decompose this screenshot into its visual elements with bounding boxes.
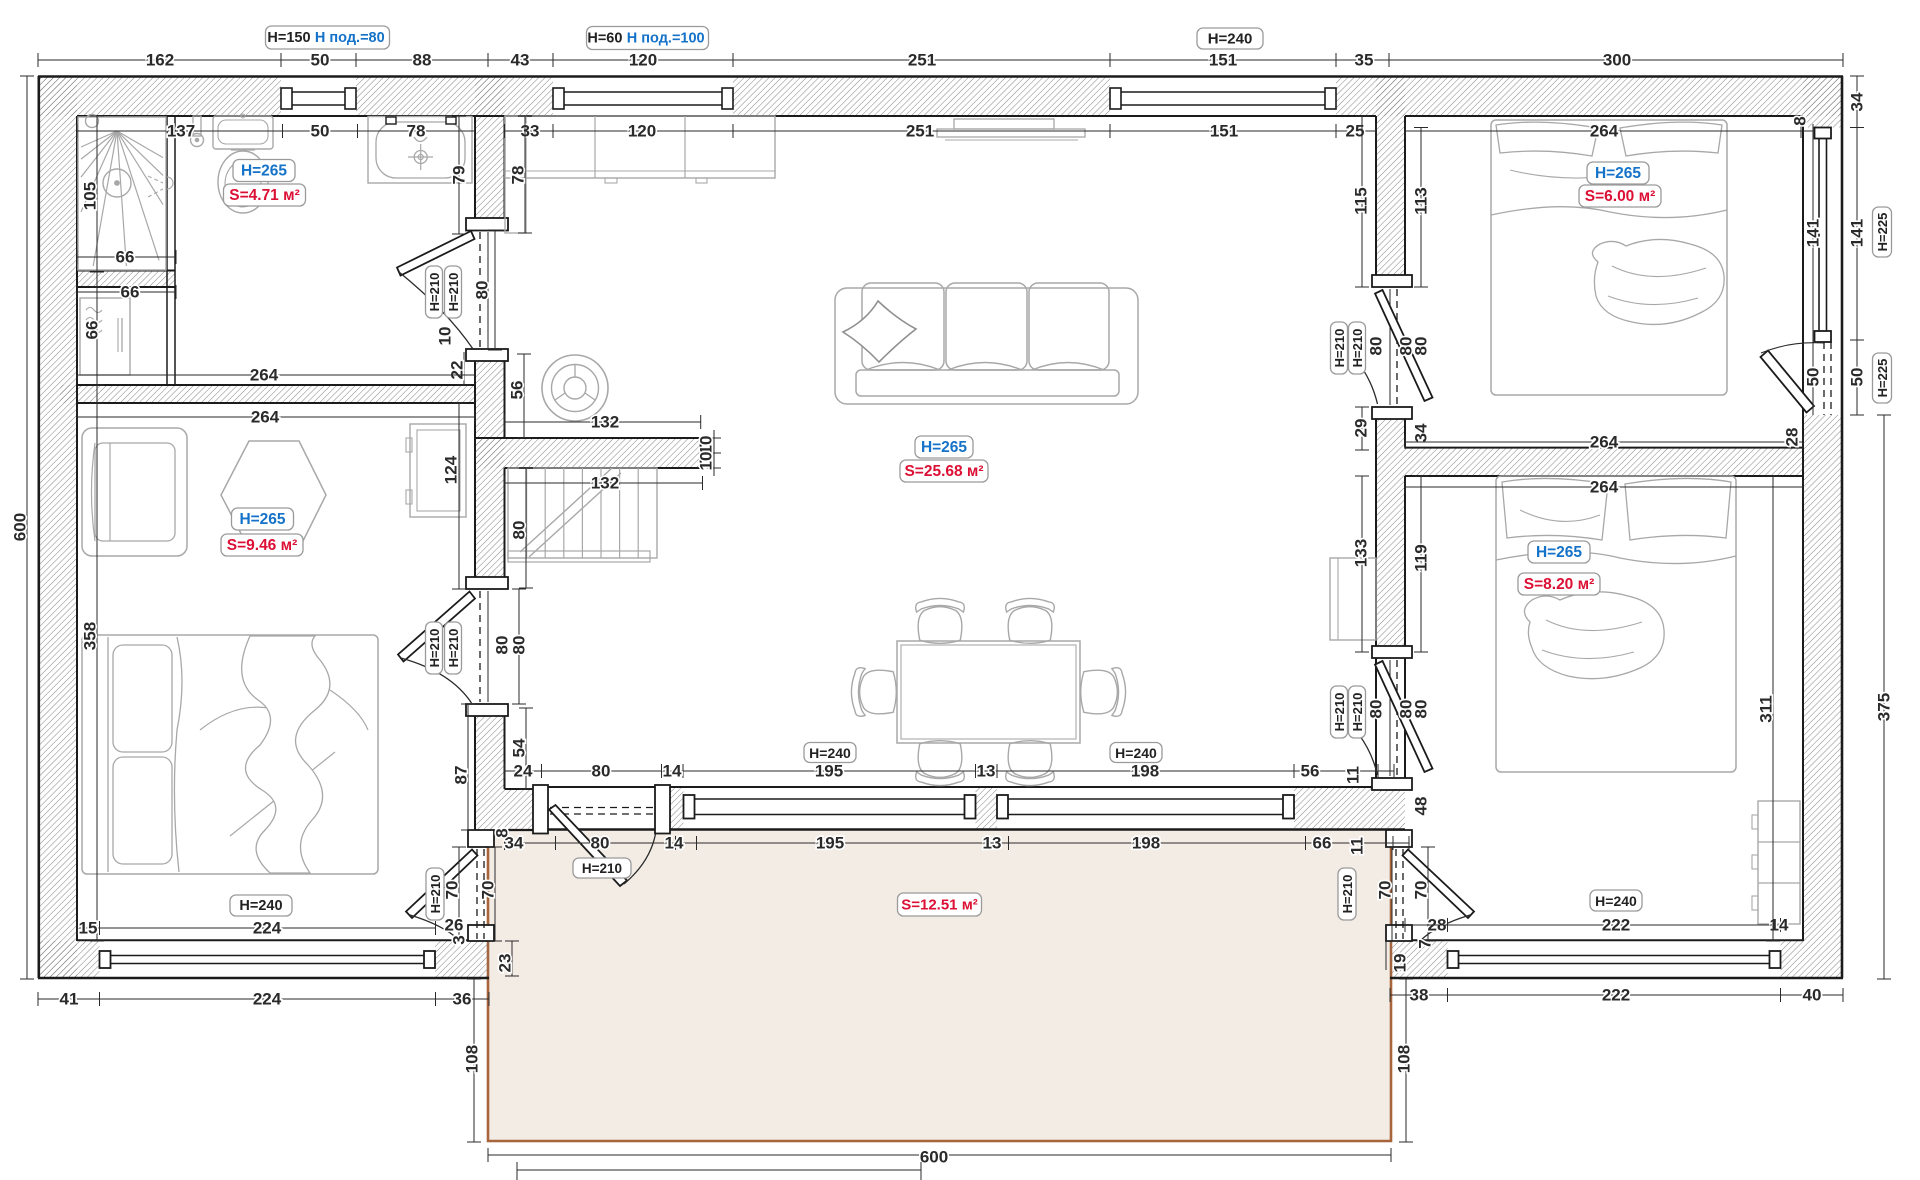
svg-text:78: 78 bbox=[407, 122, 426, 141]
svg-text:Н под.=80: Н под.=80 bbox=[315, 30, 385, 46]
svg-text:H=210: H=210 bbox=[1340, 875, 1355, 914]
svg-text:80: 80 bbox=[591, 834, 610, 853]
svg-text:80: 80 bbox=[510, 636, 529, 655]
svg-text:3: 3 bbox=[450, 935, 469, 944]
svg-text:137: 137 bbox=[167, 122, 195, 141]
svg-text:264: 264 bbox=[1590, 478, 1619, 497]
svg-text:115: 115 bbox=[1352, 187, 1371, 214]
svg-text:H=210: H=210 bbox=[1350, 693, 1365, 732]
svg-text:35: 35 bbox=[1355, 51, 1374, 70]
svg-text:251: 251 bbox=[906, 122, 934, 141]
svg-text:80: 80 bbox=[1367, 337, 1386, 356]
svg-text:43: 43 bbox=[511, 51, 530, 70]
svg-text:80: 80 bbox=[1412, 700, 1431, 719]
svg-text:22: 22 bbox=[448, 361, 467, 380]
svg-text:H=240: H=240 bbox=[1208, 31, 1253, 48]
svg-text:79: 79 bbox=[450, 166, 469, 185]
svg-text:264: 264 bbox=[1590, 122, 1619, 141]
svg-text:50: 50 bbox=[311, 122, 330, 141]
svg-text:375: 375 bbox=[1875, 693, 1894, 721]
svg-text:198: 198 bbox=[1132, 834, 1160, 853]
svg-text:H=210: H=210 bbox=[428, 875, 443, 914]
svg-text:198: 198 bbox=[1131, 762, 1159, 781]
svg-text:600: 600 bbox=[11, 513, 30, 541]
svg-text:162: 162 bbox=[146, 51, 174, 70]
svg-text:H=210: H=210 bbox=[582, 861, 622, 876]
svg-text:14: 14 bbox=[1770, 916, 1789, 935]
svg-text:141: 141 bbox=[1804, 219, 1823, 247]
svg-text:133: 133 bbox=[1352, 539, 1371, 567]
svg-text:251: 251 bbox=[908, 51, 936, 70]
svg-text:36: 36 bbox=[453, 990, 472, 1009]
svg-text:87: 87 bbox=[452, 766, 471, 785]
svg-text:H=210: H=210 bbox=[427, 273, 442, 312]
svg-text:H=265: H=265 bbox=[239, 511, 285, 528]
svg-text:50: 50 bbox=[311, 51, 330, 70]
svg-text:H=265: H=265 bbox=[1595, 165, 1641, 182]
svg-text:224: 224 bbox=[253, 990, 282, 1009]
svg-text:10: 10 bbox=[436, 327, 455, 346]
svg-text:34: 34 bbox=[1848, 92, 1867, 111]
svg-text:70: 70 bbox=[1412, 881, 1431, 900]
svg-text:H=225: H=225 bbox=[1875, 359, 1890, 398]
svg-text:132: 132 bbox=[591, 413, 619, 432]
svg-text:40: 40 bbox=[1803, 986, 1822, 1005]
svg-text:50: 50 bbox=[1804, 368, 1823, 387]
svg-text:105: 105 bbox=[81, 182, 100, 210]
svg-text:151: 151 bbox=[1209, 51, 1237, 70]
svg-text:S=4.71 м²: S=4.71 м² bbox=[229, 187, 300, 204]
svg-text:264: 264 bbox=[250, 366, 279, 385]
svg-text:H=225: H=225 bbox=[1875, 213, 1890, 252]
svg-text:70: 70 bbox=[479, 881, 498, 900]
svg-text:311: 311 bbox=[1757, 695, 1776, 722]
svg-text:195: 195 bbox=[815, 762, 843, 781]
svg-text:19: 19 bbox=[1391, 954, 1410, 973]
svg-text:80: 80 bbox=[473, 281, 492, 300]
svg-text:S=12.51 м²: S=12.51 м² bbox=[901, 897, 978, 914]
svg-text:33: 33 bbox=[521, 122, 540, 141]
svg-text:H=210: H=210 bbox=[446, 629, 461, 668]
svg-text:11: 11 bbox=[1344, 766, 1363, 784]
svg-text:H=210: H=210 bbox=[446, 273, 461, 312]
svg-text:H=210: H=210 bbox=[1350, 329, 1365, 368]
svg-text:56: 56 bbox=[508, 381, 527, 400]
svg-text:120: 120 bbox=[628, 122, 656, 141]
svg-text:Н под.=100: Н под.=100 bbox=[627, 31, 705, 47]
svg-text:222: 222 bbox=[1602, 916, 1630, 935]
svg-text:26: 26 bbox=[445, 916, 464, 935]
svg-text:358: 358 bbox=[81, 622, 100, 650]
svg-text:70: 70 bbox=[443, 881, 462, 900]
svg-text:80: 80 bbox=[1367, 700, 1386, 719]
svg-text:8: 8 bbox=[1791, 116, 1810, 125]
svg-text:H=240: H=240 bbox=[1115, 745, 1157, 761]
svg-text:66: 66 bbox=[83, 321, 102, 340]
svg-text:124: 124 bbox=[442, 455, 461, 484]
svg-text:38: 38 bbox=[1410, 986, 1429, 1005]
svg-text:H=150: H=150 bbox=[267, 30, 310, 46]
svg-text:56: 56 bbox=[1301, 762, 1320, 781]
svg-text:S=25.68 м²: S=25.68 м² bbox=[904, 463, 983, 480]
svg-text:10: 10 bbox=[697, 452, 716, 471]
svg-text:H=240: H=240 bbox=[239, 898, 282, 914]
svg-text:S=6.00 м²: S=6.00 м² bbox=[1585, 188, 1656, 205]
svg-text:54: 54 bbox=[510, 738, 529, 757]
svg-text:H=210: H=210 bbox=[427, 629, 442, 668]
svg-text:23: 23 bbox=[496, 954, 515, 973]
svg-text:264: 264 bbox=[1590, 433, 1619, 452]
svg-text:H=265: H=265 bbox=[921, 439, 967, 456]
svg-text:H=210: H=210 bbox=[1332, 329, 1347, 368]
svg-text:41: 41 bbox=[60, 990, 79, 1009]
svg-text:50: 50 bbox=[1848, 368, 1867, 387]
svg-text:195: 195 bbox=[816, 834, 844, 853]
svg-text:H=60: H=60 bbox=[587, 31, 622, 47]
svg-text:14: 14 bbox=[663, 762, 682, 781]
svg-text:48: 48 bbox=[1412, 797, 1431, 816]
svg-text:H=240: H=240 bbox=[1595, 893, 1637, 909]
svg-text:H=210: H=210 bbox=[1332, 693, 1347, 732]
svg-text:14: 14 bbox=[665, 834, 684, 853]
svg-text:66: 66 bbox=[1313, 834, 1332, 853]
svg-text:132: 132 bbox=[591, 474, 619, 493]
svg-text:120: 120 bbox=[629, 51, 657, 70]
svg-text:119: 119 bbox=[1412, 544, 1431, 571]
svg-text:78: 78 bbox=[509, 166, 528, 185]
svg-text:S=8.20 м²: S=8.20 м² bbox=[1524, 576, 1595, 593]
svg-text:8: 8 bbox=[493, 828, 512, 837]
svg-text:S=9.46 м²: S=9.46 м² bbox=[227, 537, 298, 554]
svg-text:15: 15 bbox=[79, 919, 98, 938]
svg-text:28: 28 bbox=[1783, 428, 1802, 447]
svg-text:600: 600 bbox=[920, 1148, 948, 1167]
svg-text:13: 13 bbox=[983, 834, 1002, 853]
svg-text:88: 88 bbox=[413, 51, 432, 70]
svg-text:66: 66 bbox=[116, 248, 135, 267]
svg-text:H=240: H=240 bbox=[809, 745, 851, 761]
svg-text:224: 224 bbox=[253, 919, 282, 938]
svg-text:151: 151 bbox=[1210, 122, 1238, 141]
svg-text:222: 222 bbox=[1602, 986, 1630, 1005]
svg-text:66: 66 bbox=[121, 283, 140, 302]
svg-text:29: 29 bbox=[1352, 419, 1371, 438]
svg-text:34: 34 bbox=[1412, 423, 1431, 442]
svg-text:7: 7 bbox=[1416, 939, 1435, 948]
svg-text:264: 264 bbox=[251, 408, 280, 427]
svg-text:108: 108 bbox=[1395, 1045, 1414, 1073]
svg-text:80: 80 bbox=[592, 762, 611, 781]
svg-text:300: 300 bbox=[1603, 51, 1631, 70]
svg-text:113: 113 bbox=[1412, 187, 1431, 214]
svg-text:108: 108 bbox=[463, 1045, 482, 1073]
svg-text:13: 13 bbox=[977, 762, 996, 781]
svg-text:70: 70 bbox=[1376, 881, 1395, 900]
svg-text:H=265: H=265 bbox=[1536, 544, 1582, 561]
svg-text:24: 24 bbox=[514, 762, 533, 781]
svg-text:141: 141 bbox=[1848, 219, 1867, 247]
svg-text:80: 80 bbox=[1412, 337, 1431, 356]
svg-text:H=265: H=265 bbox=[241, 163, 287, 180]
svg-text:80: 80 bbox=[510, 521, 529, 540]
svg-text:11: 11 bbox=[1348, 837, 1367, 855]
